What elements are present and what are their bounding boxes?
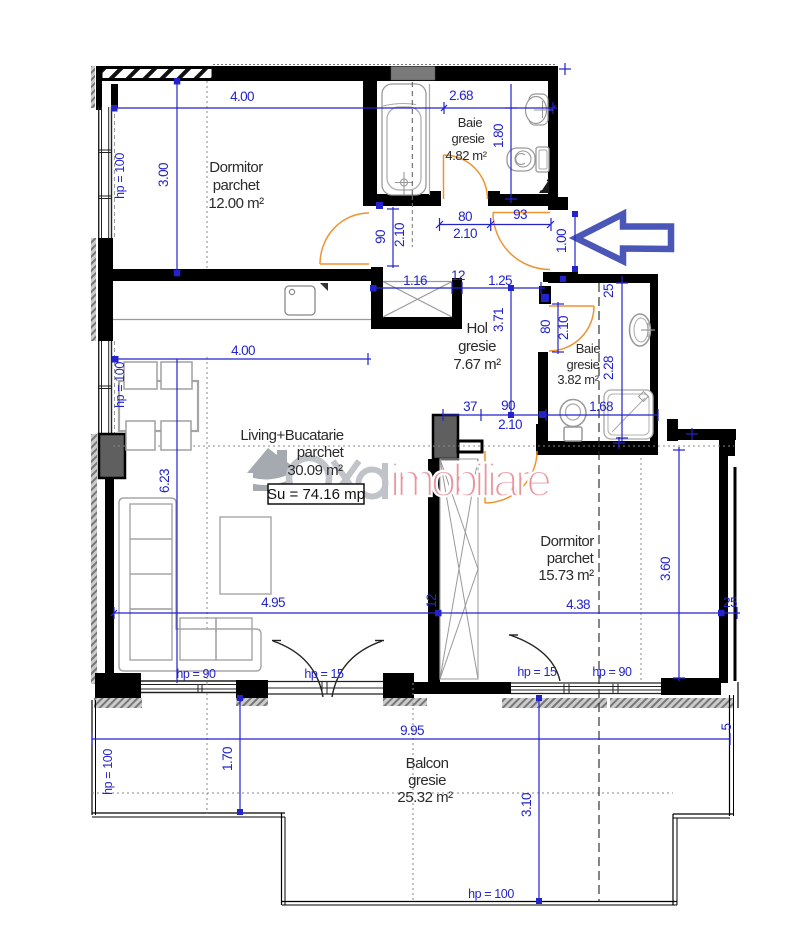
svg-text:2.68: 2.68 <box>449 88 473 103</box>
svg-text:12: 12 <box>451 268 465 283</box>
svg-text:2.10: 2.10 <box>453 226 477 241</box>
svg-text:5: 5 <box>719 723 734 730</box>
svg-text:30.09 m²: 30.09 m² <box>287 462 343 479</box>
svg-text:1.16: 1.16 <box>403 273 427 288</box>
svg-text:25: 25 <box>723 595 737 610</box>
svg-text:2.10: 2.10 <box>498 417 522 432</box>
svg-text:Baie: Baie <box>458 115 483 130</box>
svg-text:hp = 100: hp = 100 <box>101 749 115 795</box>
svg-text:3.00: 3.00 <box>156 163 171 187</box>
svg-text:9.95: 9.95 <box>400 723 424 738</box>
svg-text:4.82 m²: 4.82 m² <box>445 148 487 163</box>
svg-text:hp = 100: hp = 100 <box>468 887 514 901</box>
svg-text:gresie: gresie <box>408 772 446 789</box>
svg-text:2.10: 2.10 <box>392 223 407 247</box>
svg-text:15.73 m²: 15.73 m² <box>538 567 594 584</box>
svg-text:Baie: Baie <box>576 341 601 356</box>
svg-text:parchet: parchet <box>213 177 261 194</box>
svg-text:3.10: 3.10 <box>519 793 534 817</box>
svg-text:2.10: 2.10 <box>556 316 571 340</box>
svg-text:hp = 100: hp = 100 <box>113 362 127 408</box>
svg-text:25.32 m²: 25.32 m² <box>397 789 453 806</box>
svg-text:gresie: gresie <box>566 357 599 372</box>
svg-text:hp = 15: hp = 15 <box>304 667 344 681</box>
svg-text:1.80: 1.80 <box>491 124 506 148</box>
svg-text:1.68: 1.68 <box>589 399 613 414</box>
svg-text:4.95: 4.95 <box>261 595 285 610</box>
svg-text:12: 12 <box>424 594 439 608</box>
svg-text:90: 90 <box>501 398 515 413</box>
svg-text:37: 37 <box>463 399 477 414</box>
svg-text:4.00: 4.00 <box>230 89 254 104</box>
svg-text:12.00 m²: 12.00 m² <box>208 195 264 212</box>
svg-text:Dormitor: Dormitor <box>540 533 594 550</box>
svg-text:Balcon: Balcon <box>406 755 449 772</box>
svg-text:gresie: gresie <box>451 131 484 146</box>
svg-text:7.67 m²: 7.67 m² <box>453 356 501 373</box>
svg-text:Dormitor: Dormitor <box>209 159 263 176</box>
svg-text:parchet: parchet <box>547 550 595 567</box>
svg-text:hp = 100: hp = 100 <box>113 153 127 199</box>
svg-text:Hol: Hol <box>466 320 487 337</box>
svg-text:4.00: 4.00 <box>231 343 255 358</box>
svg-text:93: 93 <box>513 207 527 222</box>
svg-text:2.28: 2.28 <box>601 356 616 380</box>
svg-text:imobiliare: imobiliare <box>390 454 550 506</box>
svg-text:parchet: parchet <box>297 444 345 461</box>
svg-text:4.38: 4.38 <box>566 597 590 612</box>
svg-text:3.71: 3.71 <box>491 308 506 332</box>
svg-text:80: 80 <box>458 209 472 224</box>
svg-text:25: 25 <box>601 284 616 298</box>
svg-text:1.00: 1.00 <box>554 229 569 253</box>
svg-text:90: 90 <box>373 230 388 244</box>
svg-text:Living+Bucatarie: Living+Bucatarie <box>240 427 343 444</box>
svg-text:gresie: gresie <box>458 338 496 355</box>
svg-text:1.70: 1.70 <box>220 747 235 771</box>
svg-text:80: 80 <box>538 320 553 334</box>
svg-text:6.23: 6.23 <box>157 469 172 493</box>
svg-text:hp = 90: hp = 90 <box>592 665 632 679</box>
svg-text:3.82 m²: 3.82 m² <box>557 372 599 387</box>
svg-text:hp = 90: hp = 90 <box>176 667 216 681</box>
svg-text:Su = 74.16 mp: Su = 74.16 mp <box>267 486 365 503</box>
svg-text:3.60: 3.60 <box>658 557 673 581</box>
svg-text:hp = 15: hp = 15 <box>517 665 557 679</box>
